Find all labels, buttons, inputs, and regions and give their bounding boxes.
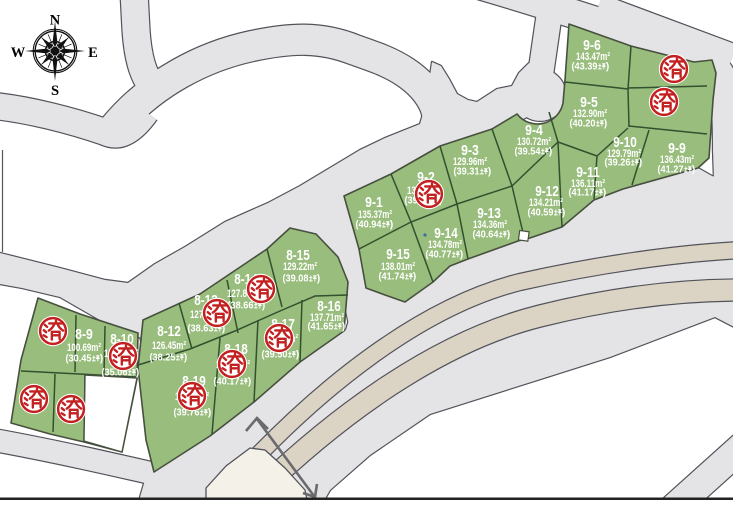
svg-text:): ) <box>507 230 510 241</box>
svg-text:(41.74: (41.74 <box>379 272 405 283</box>
svg-text:(38.25: (38.25 <box>150 353 176 364</box>
svg-text:(39.26: (39.26 <box>605 158 631 169</box>
svg-text:): ) <box>413 272 416 283</box>
svg-text:129.22m²: 129.22m² <box>283 261 317 273</box>
svg-text:): ) <box>296 350 299 361</box>
svg-text:): ) <box>488 167 491 178</box>
svg-text:): ) <box>342 322 345 333</box>
svg-text:): ) <box>460 250 463 261</box>
svg-text:(40.59: (40.59 <box>528 208 554 219</box>
svg-text:E: E <box>88 45 98 61</box>
svg-text:S: S <box>51 83 59 99</box>
svg-text:): ) <box>549 147 552 158</box>
svg-text:(41.17: (41.17 <box>569 188 595 199</box>
svg-text:(39.31: (39.31 <box>454 167 480 178</box>
svg-text:(40.64: (40.64 <box>473 230 499 241</box>
svg-text:): ) <box>390 220 393 231</box>
svg-text:): ) <box>248 377 251 388</box>
svg-text:): ) <box>606 62 609 73</box>
svg-text:): ) <box>603 188 606 199</box>
svg-text:(30.45: (30.45 <box>66 354 92 365</box>
svg-text:(40.20: (40.20 <box>570 119 596 130</box>
svg-text:): ) <box>136 368 139 379</box>
svg-text:(41.65: (41.65 <box>308 322 334 333</box>
svg-text:(43.39: (43.39 <box>572 62 598 73</box>
svg-text:100.69m²: 100.69m² <box>67 342 101 354</box>
svg-text:): ) <box>208 408 211 419</box>
svg-text:(40.77: (40.77 <box>426 250 452 261</box>
svg-text:(40.94: (40.94 <box>356 220 382 231</box>
svg-text:): ) <box>562 208 565 219</box>
svg-text:): ) <box>639 158 642 169</box>
svg-text:): ) <box>692 165 695 176</box>
svg-text:W: W <box>11 45 26 61</box>
svg-text:): ) <box>317 274 320 285</box>
svg-text:): ) <box>100 354 103 365</box>
svg-text:(39.08: (39.08 <box>283 274 309 285</box>
svg-text:N: N <box>50 13 61 29</box>
svg-text:8-9: 8-9 <box>75 327 93 343</box>
svg-text:126.45m²: 126.45m² <box>152 340 186 352</box>
svg-text:(39.54: (39.54 <box>515 147 541 158</box>
svg-text:): ) <box>604 119 607 130</box>
svg-text:8-12: 8-12 <box>157 324 181 340</box>
svg-text:(41.27: (41.27 <box>658 165 684 176</box>
svg-text:): ) <box>184 353 187 364</box>
